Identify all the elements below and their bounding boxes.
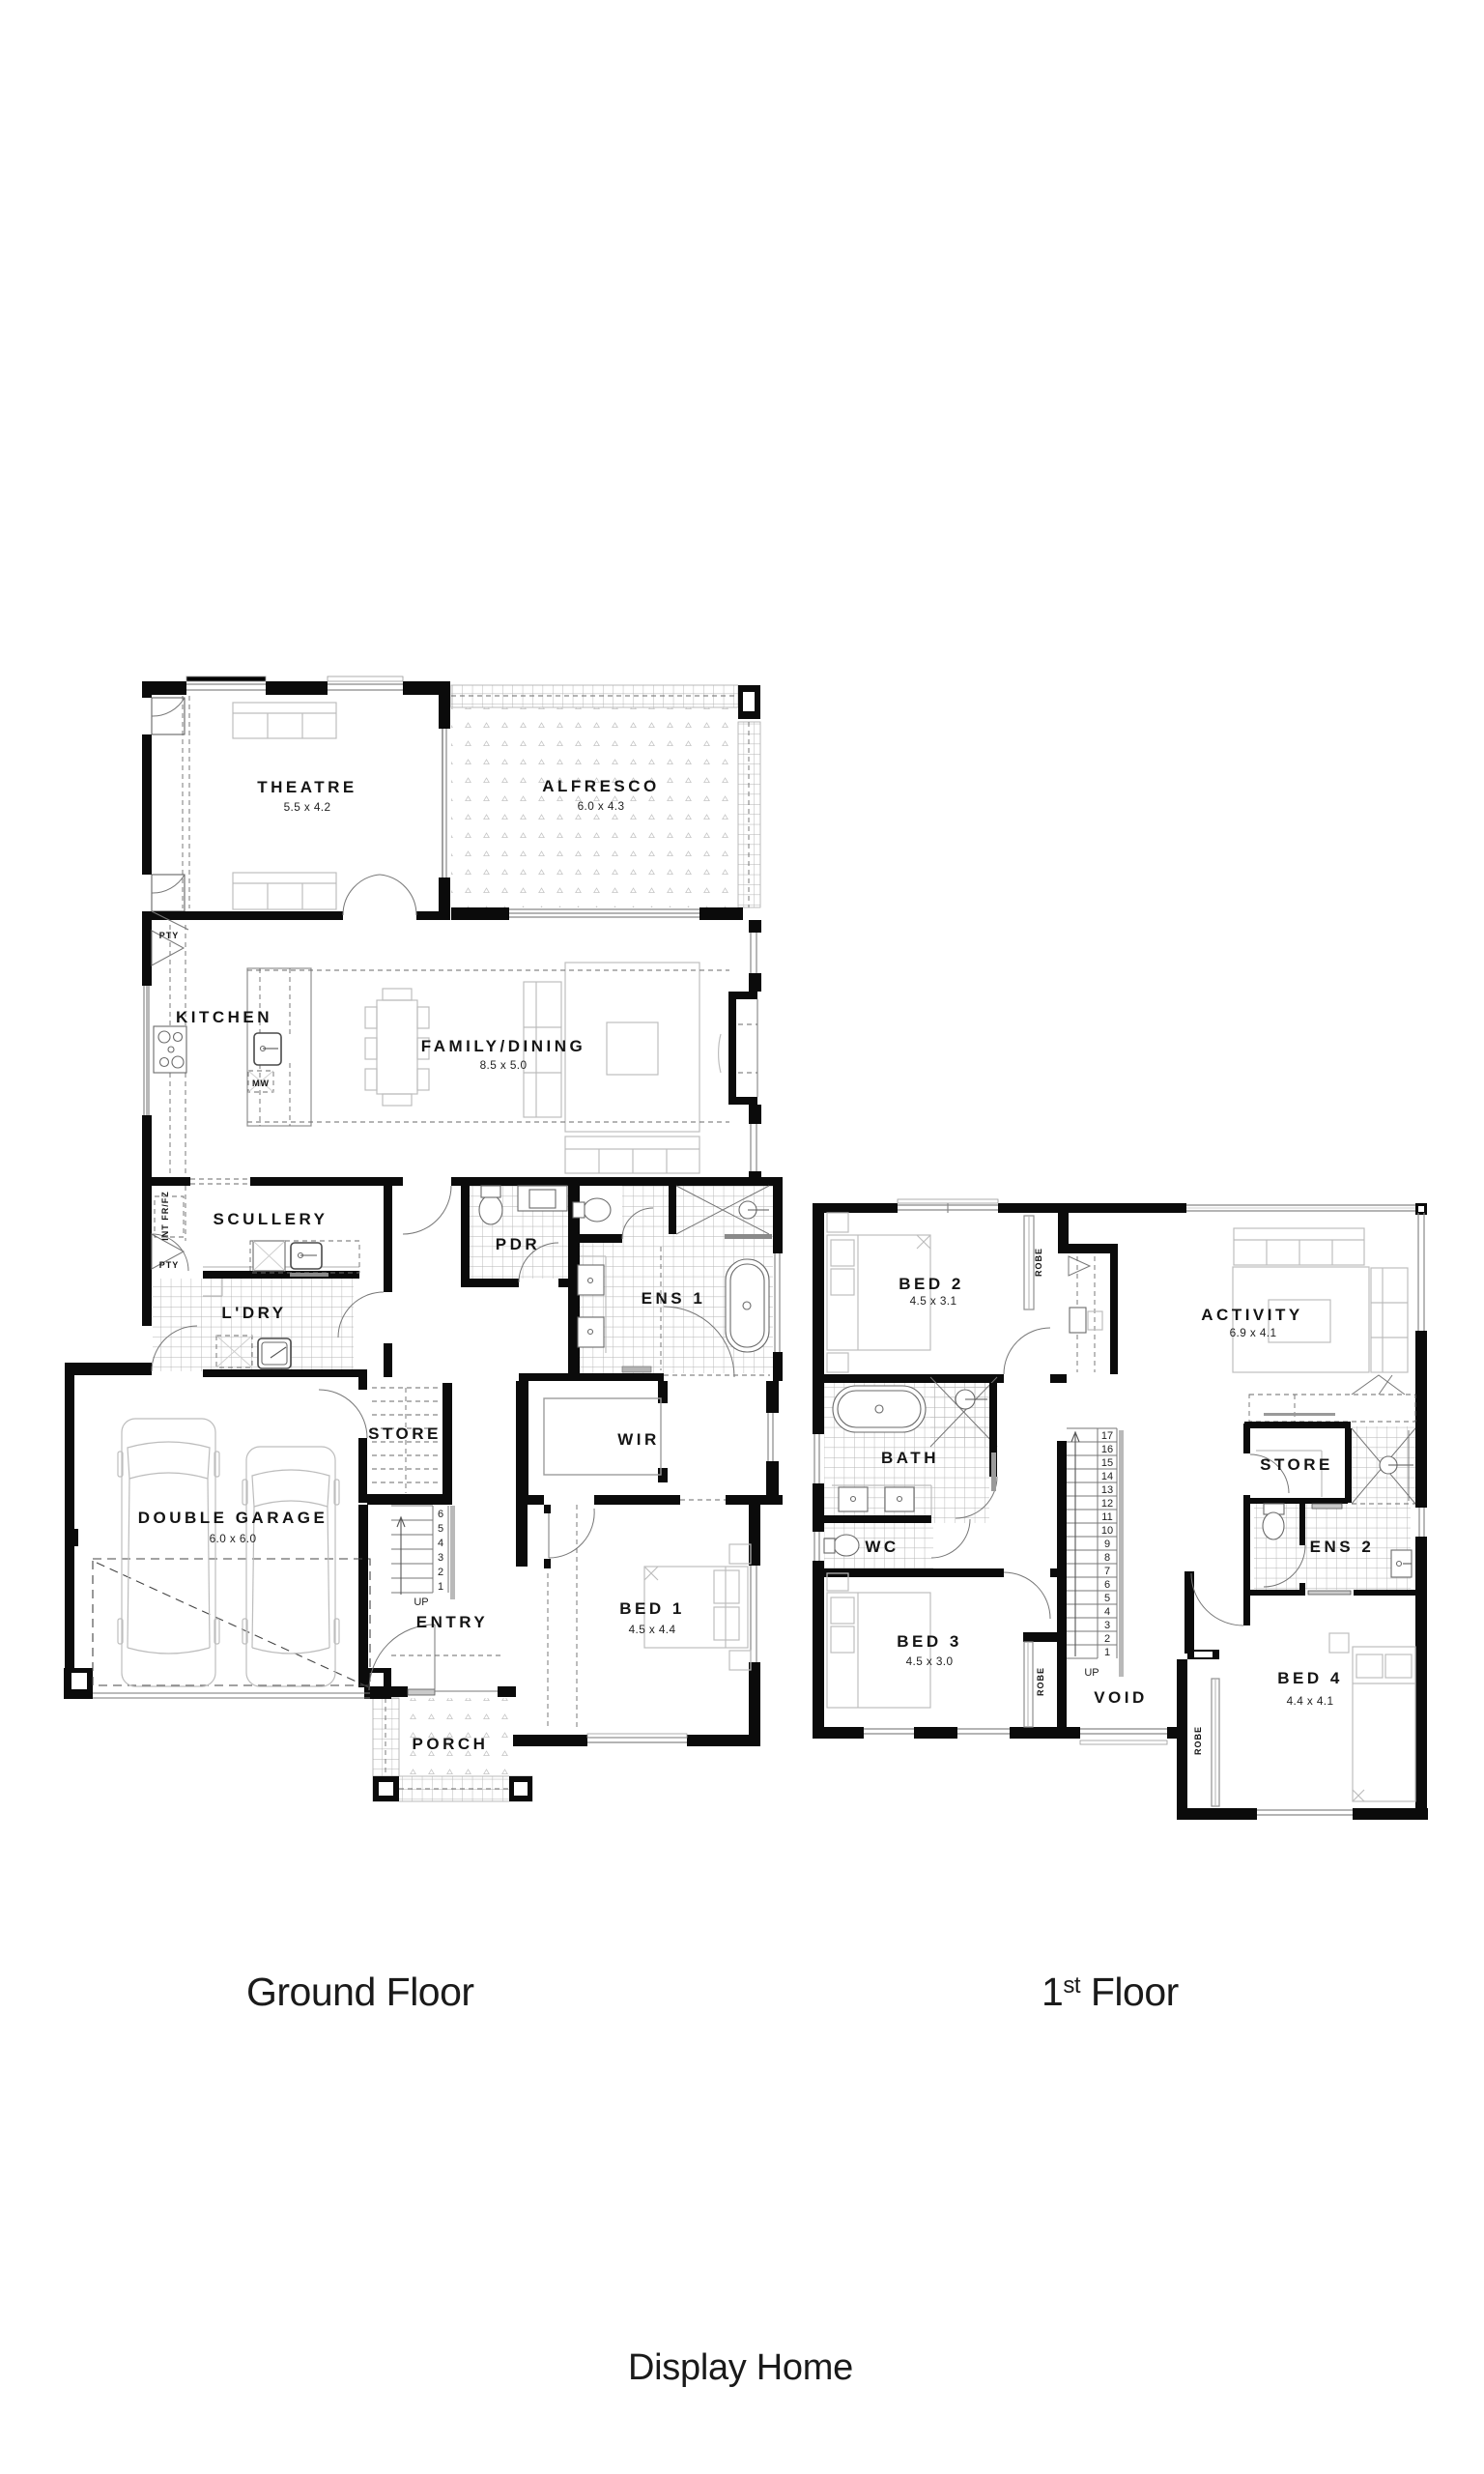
svg-text:7: 7 [1104, 1566, 1110, 1577]
svg-text:15: 15 [1101, 1457, 1113, 1469]
svg-text:3: 3 [438, 1552, 443, 1564]
svg-text:4.5 x 4.4: 4.5 x 4.4 [629, 1623, 676, 1636]
svg-text:8: 8 [1104, 1552, 1110, 1564]
svg-text:ENS 1: ENS 1 [642, 1289, 706, 1308]
svg-text:MW: MW [252, 1079, 270, 1088]
svg-text:Display Home: Display Home [628, 2347, 853, 2388]
svg-text:14: 14 [1101, 1471, 1113, 1482]
svg-text:ALFRESCO: ALFRESCO [542, 777, 660, 795]
svg-text:2: 2 [438, 1567, 443, 1578]
svg-text:DOUBLE GARAGE: DOUBLE GARAGE [138, 1509, 328, 1527]
svg-text:WC: WC [865, 1538, 899, 1556]
svg-text:1: 1 [438, 1581, 443, 1593]
svg-text:ROBE: ROBE [1034, 1248, 1043, 1277]
svg-text:ENS 2: ENS 2 [1310, 1538, 1375, 1556]
svg-text:5.5 x 4.2: 5.5 x 4.2 [284, 800, 331, 814]
svg-text:3: 3 [1104, 1620, 1110, 1631]
svg-text:Ground Floor: Ground Floor [246, 1970, 474, 2014]
svg-text:2: 2 [1104, 1633, 1110, 1645]
svg-text:4.5 x 3.0: 4.5 x 3.0 [906, 1654, 954, 1668]
svg-text:PTY: PTY [159, 1260, 180, 1270]
svg-text:12: 12 [1101, 1498, 1113, 1510]
svg-text:VOID: VOID [1094, 1688, 1148, 1707]
svg-text:4: 4 [1104, 1606, 1110, 1618]
svg-text:STORE: STORE [1260, 1455, 1333, 1474]
svg-text:13: 13 [1101, 1484, 1113, 1496]
svg-text:WIR: WIR [617, 1430, 660, 1449]
svg-text:ENTRY: ENTRY [416, 1613, 489, 1631]
svg-text:FAMILY/DINING: FAMILY/DINING [421, 1037, 586, 1055]
svg-text:BED 1: BED 1 [619, 1599, 685, 1618]
svg-text:BED 3: BED 3 [897, 1632, 962, 1651]
svg-text:5: 5 [1104, 1593, 1110, 1604]
svg-text:6.9 x 4.1: 6.9 x 4.1 [1230, 1326, 1277, 1339]
svg-text:BED 2: BED 2 [899, 1275, 964, 1293]
svg-text:ROBE: ROBE [1036, 1667, 1045, 1696]
svg-text:INT FR/FZ: INT FR/FZ [160, 1191, 170, 1241]
svg-text:4: 4 [438, 1538, 443, 1549]
svg-text:KITCHEN: KITCHEN [176, 1008, 272, 1026]
svg-text:6.0 x 6.0: 6.0 x 6.0 [210, 1532, 257, 1545]
svg-text:STORE: STORE [368, 1424, 442, 1443]
svg-text:ACTIVITY: ACTIVITY [1201, 1306, 1302, 1324]
svg-text:1: 1 [1104, 1647, 1110, 1658]
svg-text:THEATRE: THEATRE [257, 778, 357, 796]
svg-text:UP: UP [414, 1597, 428, 1608]
svg-text:8.5 x 5.0: 8.5 x 5.0 [480, 1058, 528, 1072]
svg-text:17: 17 [1101, 1430, 1113, 1442]
svg-text:PORCH: PORCH [413, 1735, 489, 1753]
svg-text:PTY: PTY [159, 931, 180, 940]
svg-text:10: 10 [1101, 1525, 1113, 1537]
svg-text:11: 11 [1101, 1511, 1112, 1523]
svg-text:SCULLERY: SCULLERY [214, 1210, 328, 1228]
svg-text:9: 9 [1104, 1539, 1110, 1550]
svg-text:UP: UP [1084, 1667, 1099, 1679]
svg-text:16: 16 [1101, 1444, 1113, 1455]
svg-text:5: 5 [438, 1523, 443, 1535]
svg-text:PDR: PDR [496, 1235, 540, 1253]
svg-text:BATH: BATH [881, 1449, 939, 1467]
svg-text:6: 6 [438, 1509, 443, 1520]
svg-text:4.5 x 3.1: 4.5 x 3.1 [910, 1294, 957, 1308]
svg-text:4.4 x 4.1: 4.4 x 4.1 [1287, 1694, 1334, 1708]
svg-text:6: 6 [1104, 1579, 1110, 1591]
svg-text:1st Floor: 1st Floor [1042, 1970, 1179, 2014]
svg-text:ROBE: ROBE [1193, 1726, 1203, 1755]
svg-text:BED 4: BED 4 [1277, 1669, 1343, 1687]
svg-text:6.0 x 4.3: 6.0 x 4.3 [578, 799, 625, 813]
svg-text:L'DRY: L'DRY [221, 1304, 286, 1322]
